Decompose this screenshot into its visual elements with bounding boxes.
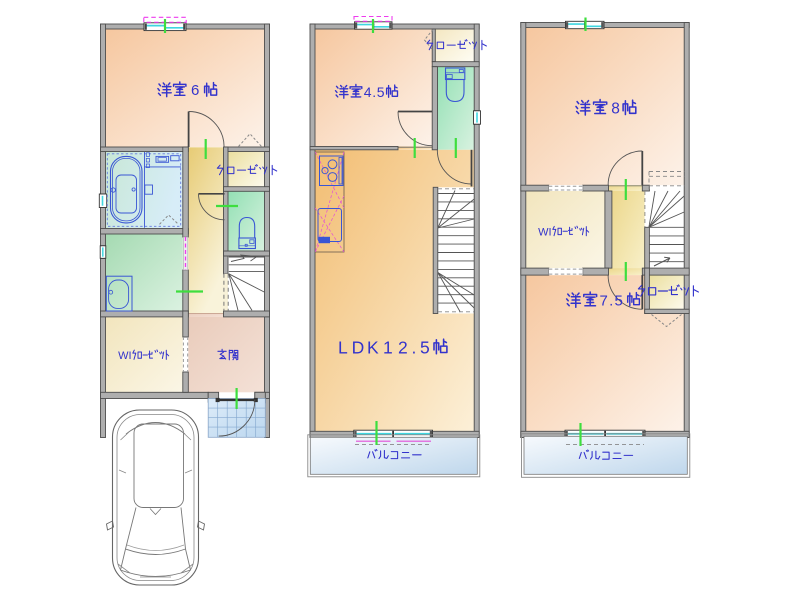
svg-text:.: . <box>609 293 613 310</box>
svg-text:WI: WI <box>118 350 131 362</box>
svg-text:5: 5 <box>615 293 623 310</box>
svg-text:K: K <box>367 337 379 357</box>
svg-text:6: 6 <box>191 82 199 99</box>
svg-text:L: L <box>338 337 348 357</box>
svg-text:.: . <box>411 337 416 357</box>
svg-text:4: 4 <box>364 84 372 100</box>
svg-text:WI: WI <box>538 226 551 238</box>
svg-text:1: 1 <box>383 337 393 357</box>
svg-text:5: 5 <box>420 337 430 357</box>
svg-text:D: D <box>352 337 365 357</box>
svg-text:.: . <box>372 84 376 100</box>
svg-text:2: 2 <box>398 337 408 357</box>
svg-text:7: 7 <box>600 293 608 310</box>
svg-text:5: 5 <box>377 84 385 100</box>
svg-text:8: 8 <box>611 100 620 117</box>
